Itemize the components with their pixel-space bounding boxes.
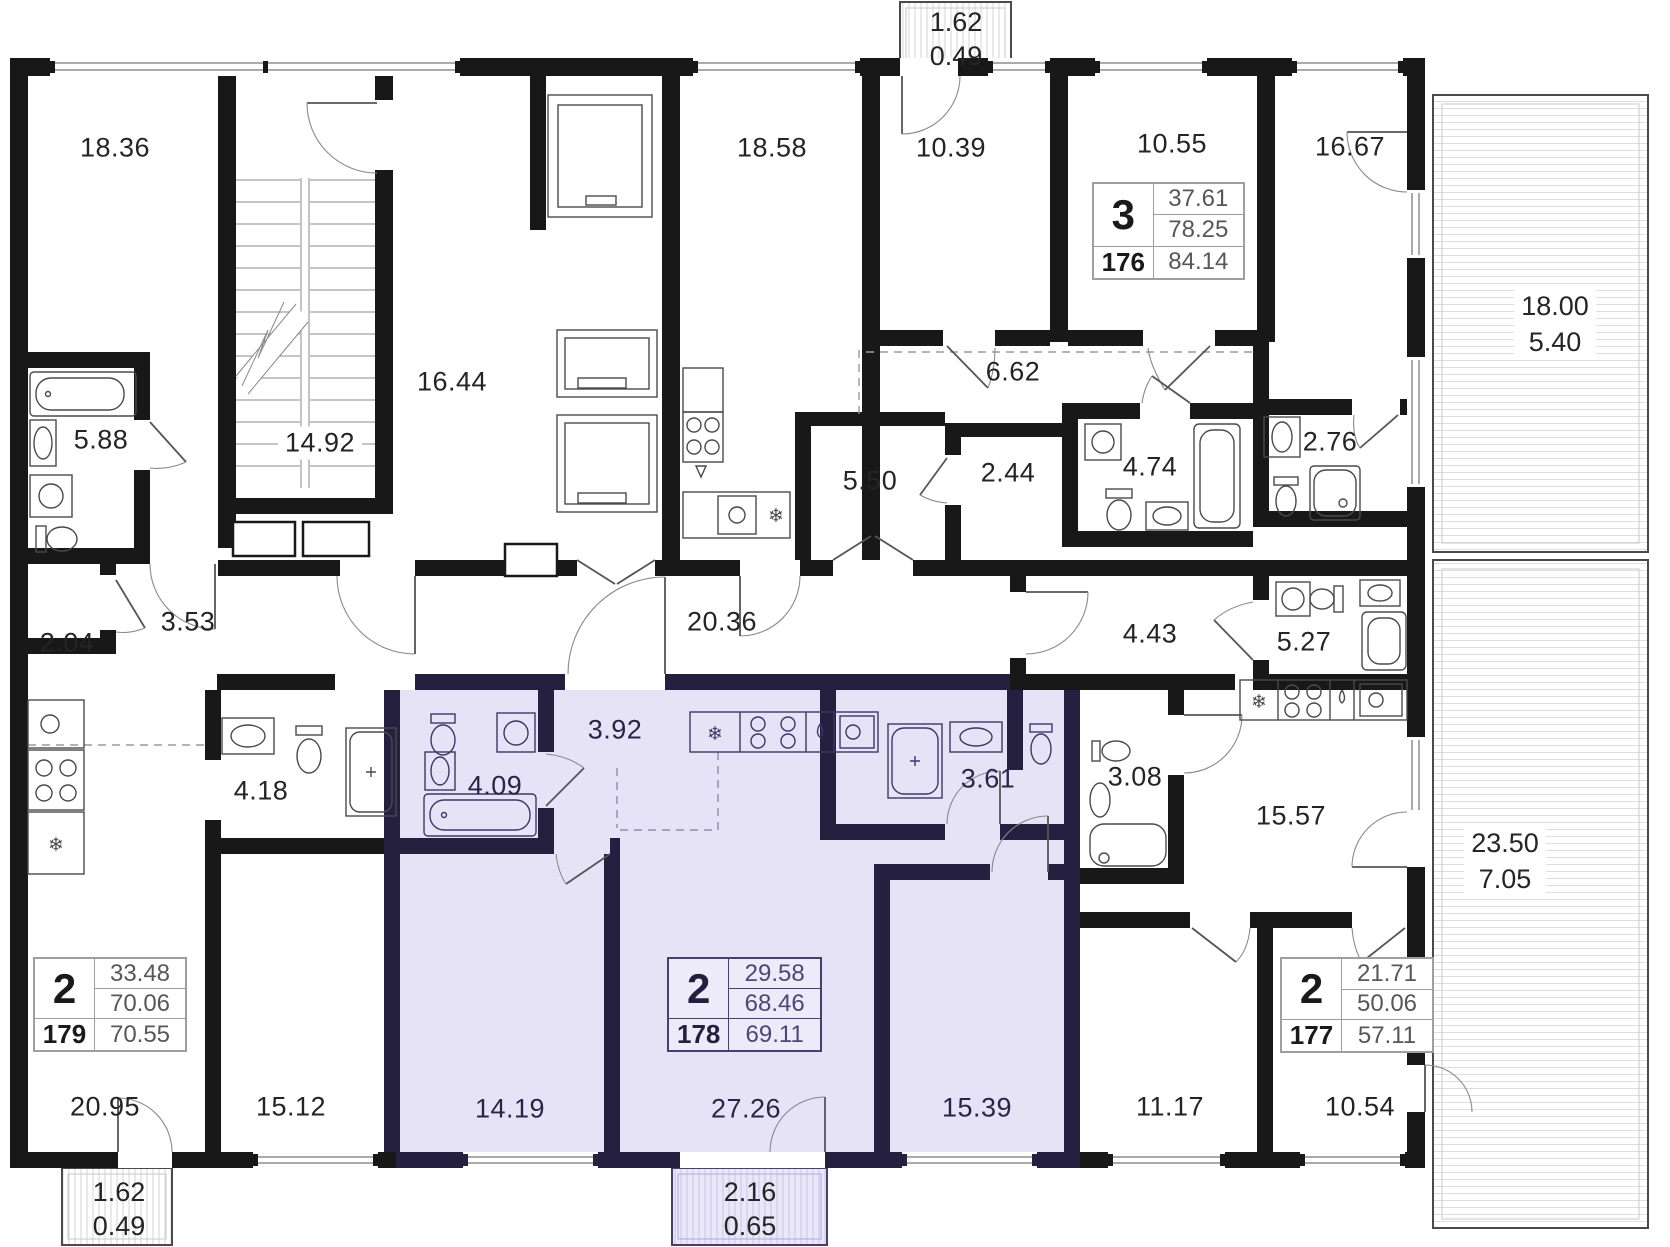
wardrobe-icon: [557, 330, 657, 397]
window: [253, 1152, 378, 1168]
room-area-label: 15.57: [1256, 801, 1326, 832]
room-area-label: 15.12: [256, 1092, 326, 1123]
apartment-total-area: 70.55: [95, 1019, 185, 1050]
room-area-label: 14.19: [475, 1094, 545, 1125]
wardrobe-icon: [557, 415, 657, 512]
room-area-label: 4.09: [468, 771, 523, 802]
sink-icon: [1146, 502, 1188, 530]
apartment-living-area: 29.58: [729, 959, 820, 989]
room-area-label: 15.39: [942, 1093, 1012, 1124]
balcony-area: 1.62: [930, 5, 983, 39]
bathtub-icon: [1362, 612, 1406, 670]
balcony-label: 1.62 0.49: [930, 5, 983, 73]
svg-text:❄: ❄: [48, 834, 64, 856]
toilet-icon: [1092, 741, 1130, 761]
window: [1108, 1152, 1225, 1168]
apartment-living-area: 33.48: [95, 959, 185, 989]
shower-icon: [1090, 824, 1166, 866]
apartment-base-area: 50.06: [1342, 990, 1432, 1021]
door: [116, 580, 145, 633]
door: [337, 576, 415, 654]
door: [1192, 928, 1250, 962]
room-area-label: 16.67: [1315, 132, 1385, 163]
room-area-label: 5.88: [74, 425, 129, 456]
highlight-region: [396, 690, 1064, 1152]
kitchen-icon: ❄: [683, 368, 790, 538]
balcony-label: 1.62 0.49: [93, 1175, 146, 1243]
svg-text:❄: ❄: [768, 505, 784, 527]
apartment-rooms-count: 3: [1094, 184, 1154, 247]
apartment-base-area: 68.46: [729, 989, 820, 1019]
apartment-info-176: 3 37.61 78.25 176 84.14: [1092, 182, 1245, 280]
balcony-area: 2.16: [724, 1175, 777, 1209]
room-area-label: 4.43: [1123, 619, 1178, 650]
washer-icon: [30, 475, 72, 517]
balcony-area-reduced: 0.49: [93, 1209, 146, 1243]
window: [1407, 357, 1425, 487]
door: [1184, 715, 1242, 773]
room-area-label: 18.58: [737, 133, 807, 164]
balcony-door-opening: [680, 1152, 825, 1168]
sink-icon: [1264, 417, 1300, 457]
sink-icon: [222, 718, 274, 754]
room-area-label: 27.26: [711, 1094, 781, 1125]
room-area-label: 3.61: [961, 764, 1016, 795]
room-area-label: 2.44: [981, 458, 1036, 489]
washer-icon: [1276, 582, 1310, 616]
bathtub-icon: [30, 372, 136, 416]
window: [50, 58, 460, 76]
apartment-rooms-count: 2: [35, 959, 95, 1019]
apartment-number: 176: [1094, 247, 1154, 278]
apartment-total-area: 84.14: [1154, 247, 1243, 278]
window: [988, 58, 1050, 76]
balcony-area: 18.00: [1514, 288, 1596, 324]
window: [902, 1152, 1037, 1168]
room-area-label: 10.39: [916, 133, 986, 164]
room-area-label: 2.76: [1303, 427, 1358, 458]
room-area-label: 5.50: [843, 466, 898, 497]
apartment-info-178: 2 29.58 68.46 178 69.11: [667, 957, 822, 1052]
door: [902, 76, 960, 134]
room-area-label: 4.74: [1123, 452, 1178, 483]
balcony-area-reduced: 7.05: [1464, 861, 1546, 897]
window: [693, 58, 860, 76]
room-area-label: 5.27: [1277, 627, 1332, 658]
door: [1352, 812, 1407, 867]
apartment-number: 179: [35, 1019, 95, 1050]
floor-plan-drawing: ❄ ❄ ❄: [0, 0, 1670, 1247]
window: [1407, 190, 1425, 258]
door: [307, 103, 377, 173]
door: [920, 458, 947, 503]
wardrobe-icon: [548, 95, 652, 217]
toilet-icon: [1106, 489, 1132, 530]
apartment-rooms-count: 2: [1282, 959, 1342, 1020]
room-area-label: 3.92: [588, 715, 643, 746]
washer-icon: [1085, 424, 1121, 460]
floor-plan: ❄ ❄ ❄: [0, 0, 1670, 1247]
room-area-label: 3.53: [161, 607, 216, 638]
door: [150, 422, 186, 468]
window: [1300, 1152, 1405, 1168]
door: [577, 560, 655, 584]
balcony-area-reduced: 5.40: [1514, 324, 1596, 360]
toilet-icon: [1310, 586, 1343, 612]
apartment-total-area: 69.11: [729, 1019, 820, 1050]
window: [463, 1152, 598, 1168]
balcony-label: 23.50 7.05: [1464, 825, 1546, 897]
apartment-total-area: 57.11: [1342, 1020, 1432, 1051]
door: [1214, 602, 1253, 660]
balcony-label: 2.16 0.65: [724, 1175, 777, 1243]
apartment-number: 177: [1282, 1020, 1342, 1051]
balcony-area-reduced: 0.65: [724, 1209, 777, 1243]
balcony-area-reduced: 0.49: [930, 39, 983, 73]
door: [1026, 592, 1088, 654]
room-area-label: 20.95: [70, 1092, 140, 1123]
window: [1292, 58, 1403, 76]
apartment-info-177: 2 21.71 50.06 177 57.11: [1280, 957, 1434, 1053]
room-area-label: 10.55: [1137, 129, 1207, 160]
balcony-door-opening: [1407, 1065, 1425, 1112]
balcony-door-opening: [1407, 813, 1425, 867]
room-area-label: 3.08: [1108, 762, 1163, 793]
toilet-icon: [296, 726, 322, 773]
apartment-info-179: 2 33.48 70.06 179 70.55: [33, 957, 187, 1052]
room-area-label: 6.62: [986, 357, 1041, 388]
svg-text:❄: ❄: [707, 723, 723, 745]
balcony-area: 23.50: [1464, 825, 1546, 861]
window: [1095, 58, 1207, 76]
kitchen-icon: ❄: [28, 700, 84, 874]
door: [568, 577, 665, 674]
svg-text:❄: ❄: [1251, 691, 1267, 713]
sink-icon: [30, 420, 56, 466]
room-area-label: 16.44: [417, 367, 487, 398]
room-area-label: 14.92: [278, 427, 362, 460]
apartment-living-area: 21.71: [1342, 959, 1432, 990]
room-area-label: 10.54: [1325, 1092, 1395, 1123]
room-area-label: 18.36: [80, 133, 150, 164]
room-area-label: 20.36: [687, 607, 757, 638]
balcony-label: 18.00 5.40: [1514, 288, 1596, 360]
room-area-label: 2.04: [40, 628, 95, 659]
apartment-rooms-count: 2: [669, 959, 729, 1019]
room-area-label: 11.17: [1136, 1092, 1204, 1123]
room-area-label: 4.18: [234, 776, 289, 807]
apartment-base-area: 78.25: [1154, 215, 1243, 246]
window: [1407, 737, 1425, 813]
balcony-door-opening: [118, 1152, 172, 1168]
balcony-area: 1.62: [93, 1175, 146, 1209]
sink-icon: [1360, 580, 1400, 606]
apartment-base-area: 70.06: [95, 989, 185, 1019]
apartment-number: 178: [669, 1019, 729, 1050]
apartment-living-area: 37.61: [1154, 184, 1243, 215]
bathtub-icon: [1194, 424, 1240, 528]
toilet-icon: [1274, 477, 1298, 516]
door: [1354, 415, 1398, 448]
